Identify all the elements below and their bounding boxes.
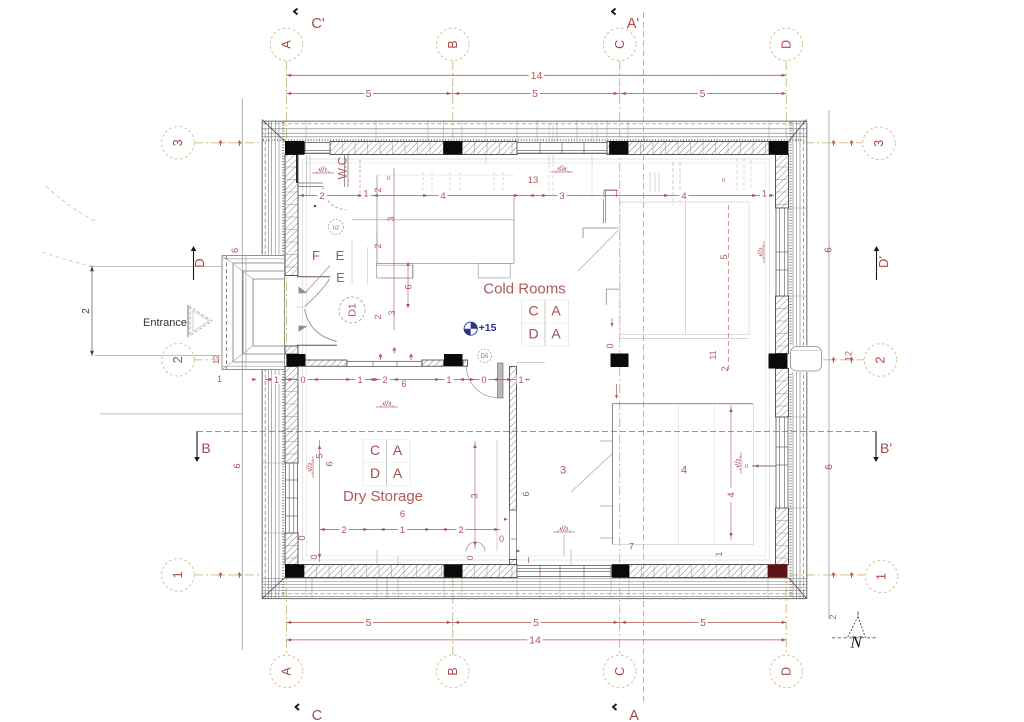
svg-text:13: 13 (528, 175, 539, 186)
svg-text:1: 1 (518, 375, 523, 386)
svg-text:C: C (370, 442, 380, 458)
svg-text:2: 2 (319, 191, 324, 202)
svg-text:6: 6 (401, 379, 406, 390)
svg-text:0: 0 (499, 534, 504, 544)
svg-text:3: 3 (559, 191, 564, 202)
svg-text:6: 6 (404, 284, 415, 289)
svg-text:1: 1 (357, 375, 362, 386)
svg-text:E: E (336, 248, 345, 263)
svg-text:6: 6 (521, 491, 532, 496)
svg-text:5: 5 (315, 453, 326, 458)
svg-text:b2: b2 (333, 226, 339, 232)
svg-text:W1: W1 (319, 168, 327, 174)
svg-text:5: 5 (532, 88, 538, 100)
svg-text:2: 2 (874, 356, 888, 363)
svg-text:0: 0 (465, 555, 475, 560)
svg-text:1: 1 (363, 189, 368, 200)
svg-text:1: 1 (274, 375, 279, 386)
svg-text:2: 2 (382, 375, 387, 386)
svg-text:A: A (551, 303, 561, 319)
svg-text:2: 2 (171, 356, 185, 363)
svg-text:11: 11 (708, 350, 718, 359)
svg-text:W2: W2 (308, 463, 314, 471)
svg-text:W2: W2 (560, 527, 568, 533)
svg-text:A: A (629, 708, 639, 722)
svg-text:A: A (393, 442, 403, 458)
svg-text:12: 12 (844, 351, 854, 361)
svg-text:W.C: W.C (336, 156, 350, 179)
svg-text:1: 1 (714, 551, 724, 556)
svg-text:D: D (192, 258, 207, 267)
svg-text:Entrance: Entrance (143, 317, 187, 329)
svg-text:A: A (280, 667, 294, 676)
svg-text:1: 1 (171, 571, 185, 578)
svg-text:W3: W3 (383, 402, 391, 408)
svg-text:C': C' (311, 16, 324, 32)
svg-text:D: D (779, 40, 793, 49)
svg-text:A: A (551, 326, 561, 342)
svg-text:1: 1 (446, 375, 451, 386)
svg-text:14: 14 (531, 70, 543, 82)
svg-text:B: B (446, 40, 460, 48)
svg-text:=: = (720, 177, 729, 182)
svg-text:3: 3 (560, 465, 566, 477)
svg-text:6: 6 (824, 464, 835, 470)
svg-text:0: 0 (300, 375, 305, 386)
svg-text:1: 1 (875, 573, 889, 580)
svg-text:B': B' (880, 440, 892, 456)
svg-text:6: 6 (230, 248, 241, 253)
svg-text:2: 2 (341, 525, 346, 536)
svg-text:B: B (201, 440, 210, 456)
svg-text:7: 7 (629, 542, 634, 553)
svg-text:14: 14 (529, 635, 541, 647)
svg-text:1: 1 (762, 189, 767, 200)
svg-text:4: 4 (726, 492, 737, 497)
svg-text:=: = (742, 463, 751, 468)
svg-text:D1: D1 (347, 303, 359, 317)
svg-text:5: 5 (700, 617, 706, 629)
svg-text:6: 6 (400, 509, 405, 520)
svg-text:5: 5 (533, 617, 539, 629)
svg-text:D: D (370, 465, 380, 481)
svg-text:A: A (393, 465, 403, 481)
svg-text:4: 4 (681, 191, 686, 202)
svg-text:1: 1 (217, 374, 222, 384)
svg-text:D: D (779, 667, 793, 676)
svg-text:C: C (613, 667, 627, 676)
svg-text:0: 0 (481, 375, 486, 386)
svg-text:E: E (336, 270, 345, 285)
svg-text:C: C (312, 708, 322, 722)
svg-text:0: 0 (605, 343, 615, 348)
svg-text:5: 5 (700, 88, 706, 100)
svg-text:A': A' (627, 16, 640, 32)
svg-text:2: 2 (81, 308, 92, 314)
svg-text:0: 0 (297, 535, 307, 540)
svg-text:3: 3 (872, 140, 886, 147)
svg-text:2: 2 (373, 314, 383, 319)
svg-text:3: 3 (171, 139, 185, 146)
svg-text:N: N (849, 633, 863, 652)
svg-text:F: F (312, 248, 320, 263)
svg-text:+15: +15 (479, 322, 497, 334)
svg-text:=: = (385, 175, 394, 180)
svg-text:6: 6 (325, 461, 336, 466)
svg-text:C: C (613, 40, 627, 49)
svg-text:4: 4 (681, 465, 687, 477)
svg-text:2: 2 (828, 614, 838, 619)
svg-text:1: 1 (400, 525, 405, 536)
svg-text:D5: D5 (481, 354, 489, 360)
svg-text:D': D' (876, 256, 891, 268)
svg-text:Cold Rooms: Cold Rooms (483, 281, 566, 298)
svg-text:B: B (446, 667, 460, 675)
svg-text:A: A (280, 40, 294, 49)
svg-text:4: 4 (440, 191, 445, 202)
svg-text:3: 3 (470, 493, 481, 498)
svg-text:5: 5 (366, 88, 372, 100)
svg-text:W2: W2 (736, 459, 742, 467)
svg-text:3: 3 (386, 216, 396, 221)
svg-text:6: 6 (824, 247, 835, 253)
svg-text:6: 6 (232, 463, 243, 468)
svg-text:0: 0 (309, 554, 319, 559)
svg-text:2: 2 (458, 525, 463, 536)
svg-text:Dry Storage: Dry Storage (343, 488, 423, 505)
svg-text:D: D (528, 326, 538, 342)
svg-text:3: 3 (387, 310, 397, 315)
svg-text:W2: W2 (759, 248, 765, 256)
svg-text:5: 5 (366, 617, 372, 629)
svg-text:SW: SW (557, 167, 567, 173)
svg-text:2: 2 (373, 243, 383, 248)
svg-text:C: C (528, 303, 538, 319)
svg-text:2: 2 (373, 187, 383, 192)
